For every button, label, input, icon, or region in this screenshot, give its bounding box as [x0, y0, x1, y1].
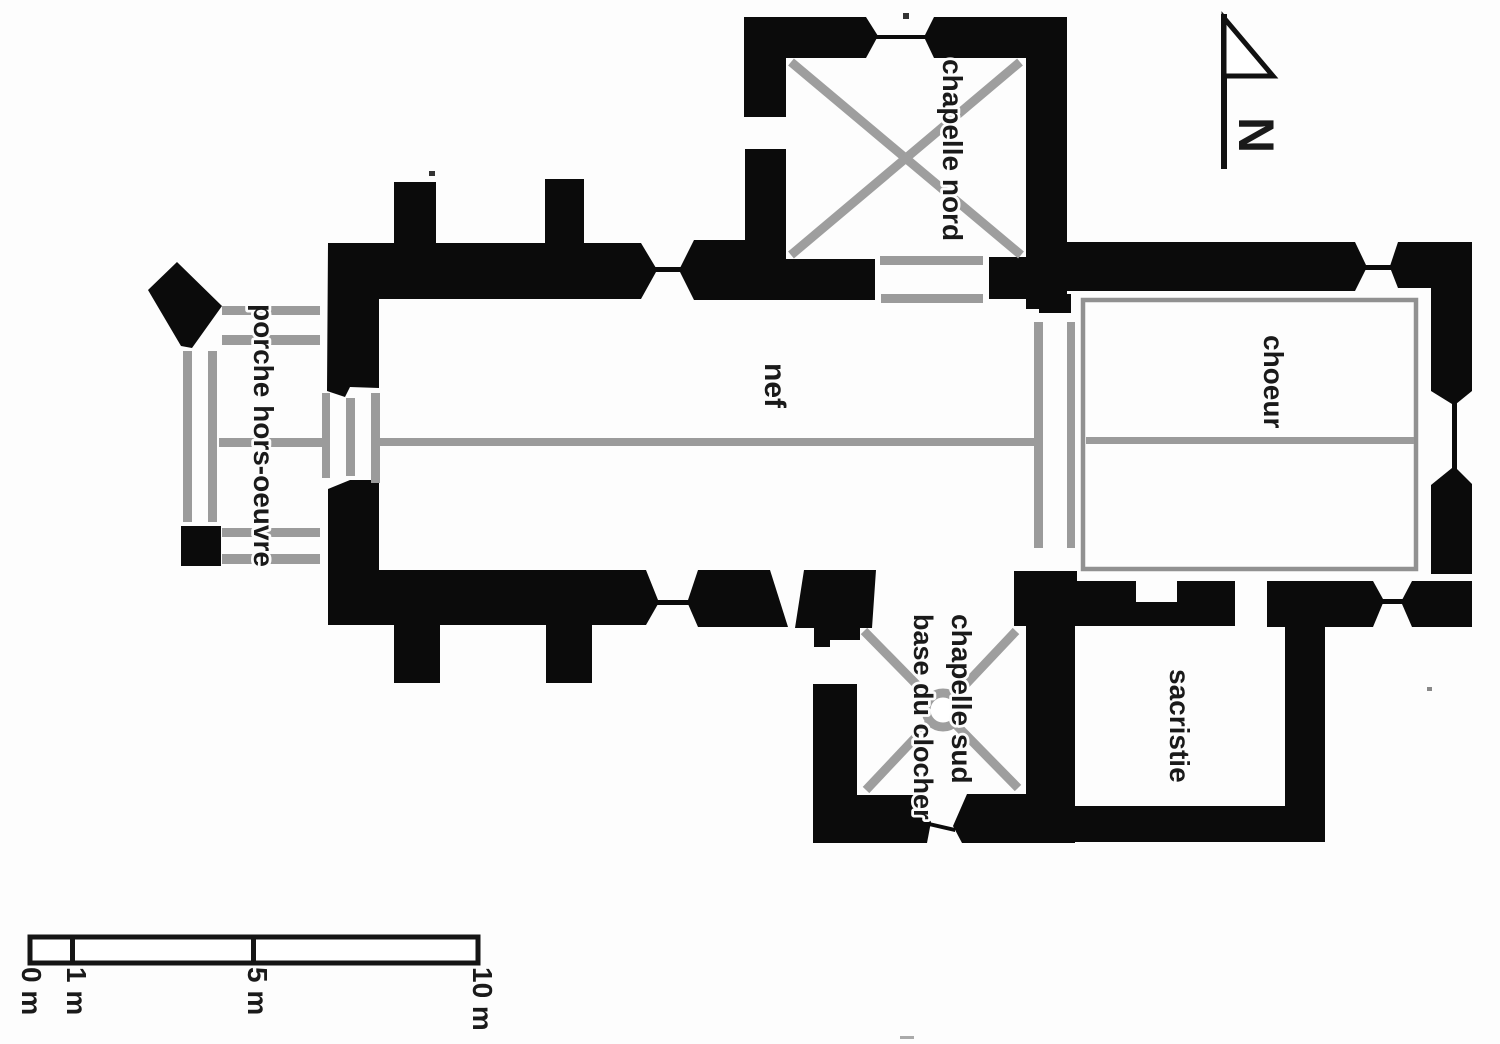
svg-text:sacristie: sacristie — [1164, 669, 1195, 783]
svg-text:10 m: 10 m — [467, 967, 498, 1031]
svg-text:nef: nef — [758, 363, 791, 409]
svg-text:N: N — [1228, 117, 1284, 153]
svg-text:chapelle nord: chapelle nord — [937, 59, 968, 241]
svg-text:porche hors-oeuvre: porche hors-oeuvre — [248, 304, 279, 567]
svg-text:chapelle sud: chapelle sud — [946, 614, 977, 784]
svg-text:base du clocher: base du clocher — [908, 614, 938, 820]
svg-text:choeur: choeur — [1258, 335, 1289, 428]
svg-text:0 m: 0 m — [16, 967, 47, 1015]
svg-text:1 m: 1 m — [61, 967, 92, 1015]
svg-text:5 m: 5 m — [242, 967, 273, 1015]
